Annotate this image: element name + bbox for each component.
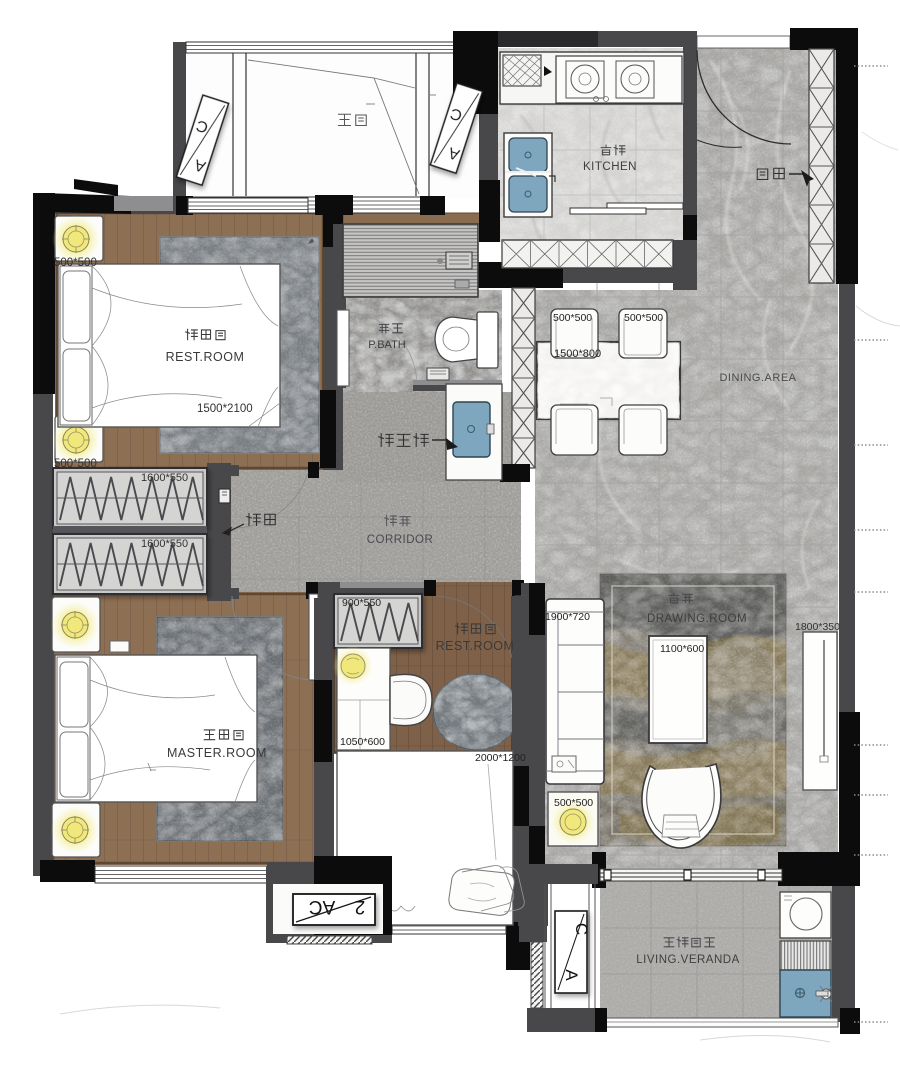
svg-text:DRAWING.ROOM: DRAWING.ROOM: [647, 613, 747, 625]
svg-text:1600*550: 1600*550: [141, 472, 188, 484]
svg-text:KITCHEN: KITCHEN: [583, 161, 637, 173]
svg-text:1600*550: 1600*550: [141, 538, 188, 550]
svg-text:500*500: 500*500: [554, 797, 593, 809]
svg-text:2000*1200: 2000*1200: [475, 752, 526, 764]
svg-text:500*500: 500*500: [54, 458, 97, 470]
svg-text:1900*720: 1900*720: [545, 611, 590, 623]
svg-text:1500*800: 1500*800: [554, 348, 601, 360]
svg-text:REST.ROOM: REST.ROOM: [166, 350, 245, 364]
svg-text:2: 2: [355, 896, 366, 917]
svg-text:AC: AC: [309, 896, 335, 917]
svg-text:900*550: 900*550: [342, 597, 381, 609]
svg-text:DINING.AREA: DINING.AREA: [719, 372, 796, 384]
svg-text:1100*600: 1100*600: [660, 643, 704, 655]
svg-text:REST.ROOM: REST.ROOM: [436, 639, 515, 653]
svg-text:CORRIDOR: CORRIDOR: [367, 534, 434, 546]
svg-text:LIVING.VERANDA: LIVING.VERANDA: [636, 954, 740, 966]
svg-text:P.BATH: P.BATH: [368, 339, 406, 351]
svg-text:500*500: 500*500: [624, 312, 663, 324]
svg-text:500*500: 500*500: [553, 312, 592, 324]
svg-text:A: A: [562, 969, 581, 981]
svg-text:1500*2100: 1500*2100: [197, 403, 253, 415]
svg-text:MASTER.ROOM: MASTER.ROOM: [167, 746, 267, 760]
svg-text:500*500: 500*500: [54, 257, 97, 269]
svg-text:1800*350: 1800*350: [795, 621, 840, 633]
svg-text:1050*600: 1050*600: [340, 736, 385, 748]
svg-text:C: C: [572, 923, 591, 935]
